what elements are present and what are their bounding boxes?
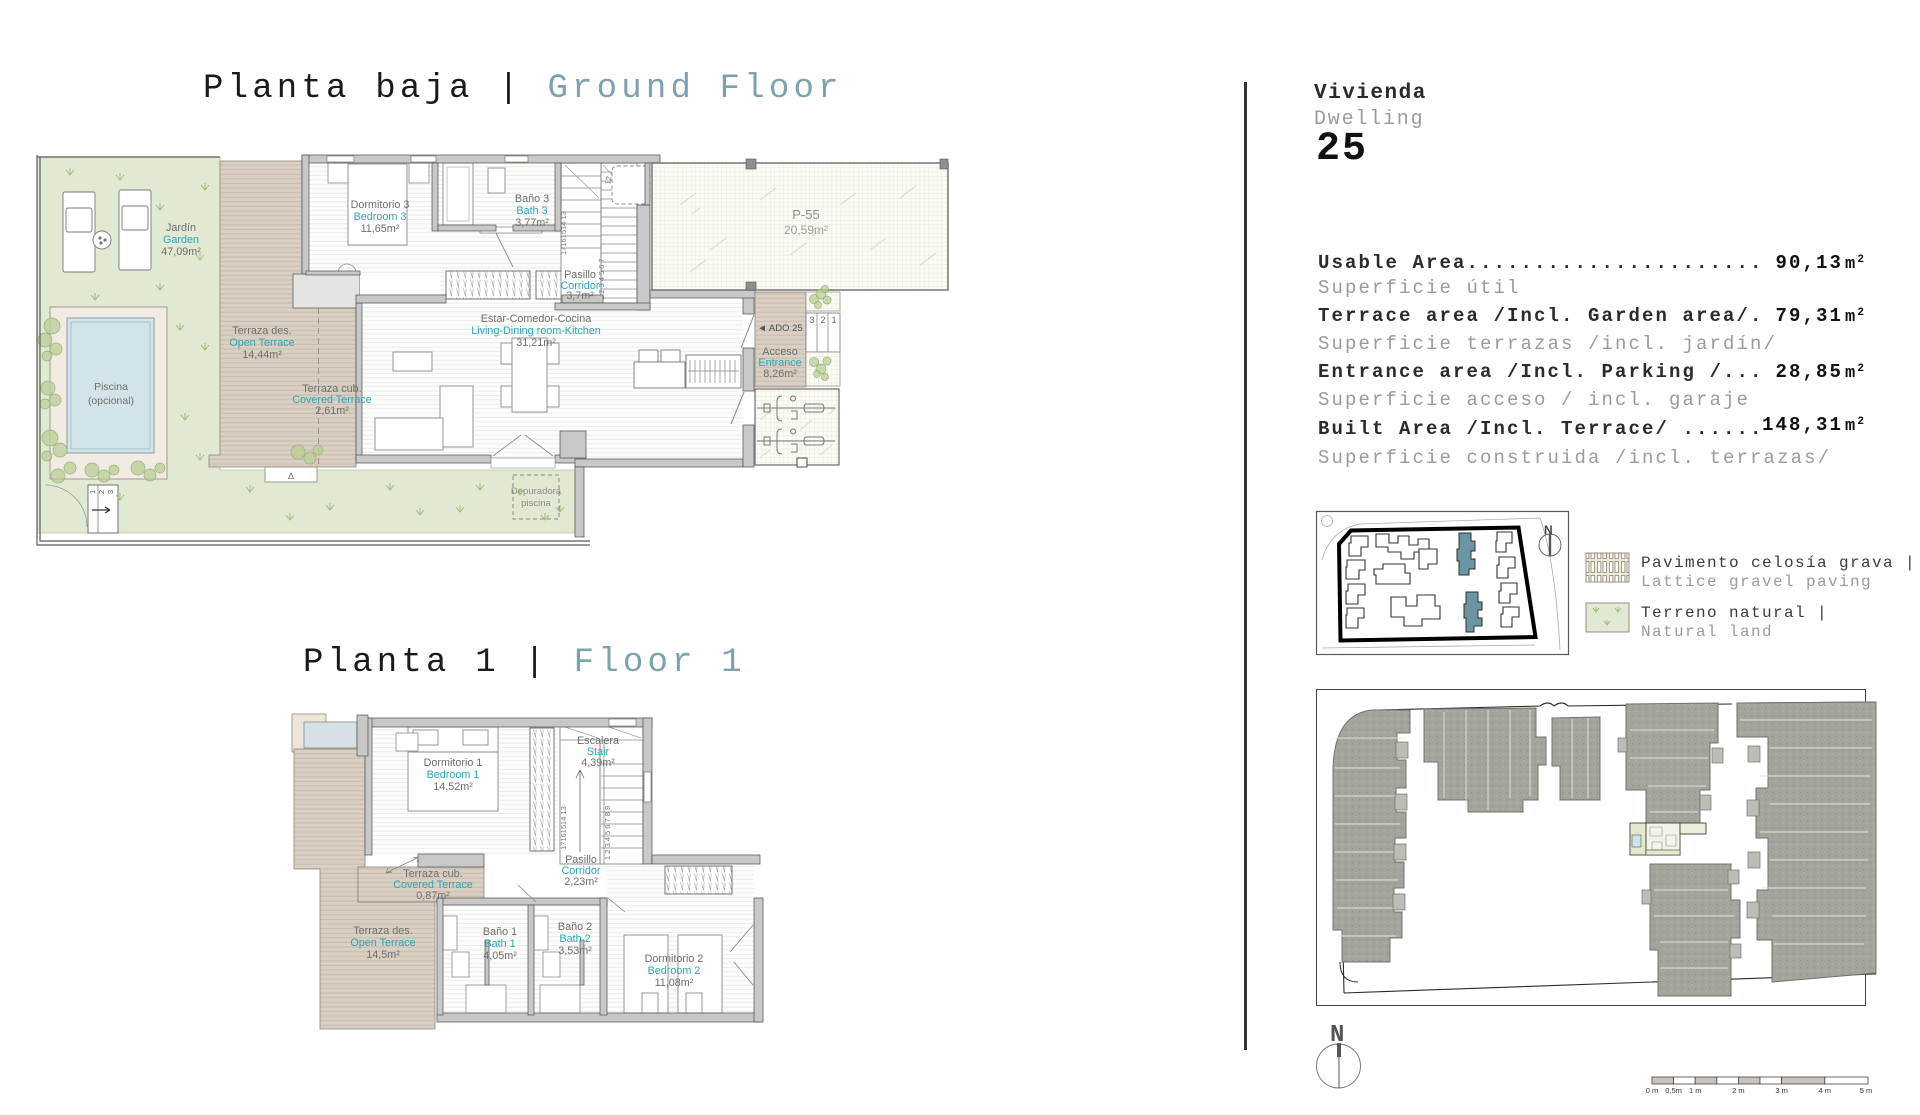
svg-text:m2: m2 [1845,363,1866,383]
svg-text:0,87m²: 0,87m² [416,890,450,902]
svg-text:Bedroom 3: Bedroom 3 [354,211,407,223]
svg-text:Terraza des.: Terraza des. [232,325,291,337]
svg-text:2,23m²: 2,23m² [564,876,598,888]
svg-text:4,05m²: 4,05m² [483,950,517,962]
svg-text:3 m: 3 m [1775,1086,1788,1095]
svg-text:2 m: 2 m [1732,1086,1745,1095]
svg-text:N: N [1544,523,1553,537]
svg-text:Piscina: Piscina [94,381,128,393]
svg-text:∆: ∆ [288,471,294,481]
svg-text:2,61m²: 2,61m² [315,405,349,417]
svg-text:0,5m: 0,5m [1665,1086,1682,1095]
svg-text:5 m: 5 m [1860,1086,1873,1095]
svg-text:20,59m²: 20,59m² [784,223,828,237]
svg-text:Natural land: Natural land [1641,623,1773,641]
svg-text:Baño 3: Baño 3 [515,193,549,205]
svg-text:m2: m2 [1845,254,1866,274]
svg-text:31,21m²: 31,21m² [516,337,556,349]
svg-text:90,13: 90,13 [1775,252,1843,274]
svg-text:1 m: 1 m [1689,1086,1702,1095]
svg-text:Dormitorio 2: Dormitorio 2 [645,953,704,965]
svg-text:4,39m²: 4,39m² [581,757,615,769]
svg-text:Living-Dining room-Kitchen: Living-Dining room-Kitchen [471,325,601,337]
svg-text:Entrance area /Incl. Parking /: Entrance area /Incl. Parking /... [1318,361,1764,383]
svg-text:Superficie útil: Superficie útil [1318,277,1521,299]
svg-text:Open Terrace: Open Terrace [350,937,415,949]
svg-text:Depuradora: Depuradora [511,486,562,497]
svg-text:m2: m2 [1845,416,1866,436]
svg-text:Bath 2: Bath 2 [559,933,590,945]
svg-text:◄ ADO 25: ◄ ADO 25 [757,323,802,334]
svg-text:Estar-Comedor-Cocina: Estar-Comedor-Cocina [481,313,591,325]
svg-text:Superficie construida /incl. t: Superficie construida /incl. terrazas/ [1318,447,1831,469]
svg-text:8,26m²: 8,26m² [763,368,797,380]
svg-text:piscina: piscina [521,498,551,509]
svg-text:3,7m²: 3,7m² [566,290,594,302]
svg-text:Baño 2: Baño 2 [558,921,592,933]
svg-text:Lattice gravel paving: Lattice gravel paving [1641,573,1872,591]
svg-text:3,77m²: 3,77m² [515,217,549,229]
svg-text:Bath 3: Bath 3 [516,205,547,217]
svg-text:Terraza des.: Terraza des. [353,925,412,937]
svg-text:(opcional): (opcional) [88,395,134,407]
svg-text:Planta 1 | Floor 1: Planta 1 | Floor 1 [303,644,746,682]
svg-text:P-55: P-55 [792,207,819,222]
svg-text:Terreno natural |: Terreno natural | [1641,604,1828,622]
svg-text:11,65m²: 11,65m² [361,223,400,235]
svg-text:148,31: 148,31 [1762,414,1843,436]
svg-text:Terrace area /Incl. Garden are: Terrace area /Incl. Garden area/. [1318,305,1764,327]
svg-text:25: 25 [1316,127,1368,172]
svg-text:3,53m²: 3,53m² [558,945,592,957]
svg-text:11,08m²: 11,08m² [655,977,694,989]
svg-text:Superficie terrazas /incl. jar: Superficie terrazas /incl. jardín/ [1318,333,1777,355]
svg-text:Bedroom 2: Bedroom 2 [648,965,701,977]
svg-text:1: 1 [831,315,836,325]
svg-text:0 m: 0 m [1646,1086,1659,1095]
svg-text:Bedroom 1: Bedroom 1 [427,769,480,781]
svg-text:m2: m2 [1845,307,1866,327]
svg-text:47,09m²: 47,09m² [161,246,201,258]
svg-text:14,5m²: 14,5m² [366,949,400,961]
svg-text:79,31: 79,31 [1775,305,1843,327]
svg-text:2: 2 [97,490,106,494]
svg-text:14,44m²: 14,44m² [242,349,282,361]
svg-text:Baño 1: Baño 1 [483,926,517,938]
svg-text:Garden: Garden [163,234,199,246]
svg-text:28,85: 28,85 [1775,361,1843,383]
svg-text:17161514 13: 17161514 13 [559,806,568,850]
svg-text:3: 3 [809,315,814,325]
svg-text:Open Terrace: Open Terrace [229,337,294,349]
svg-text:4 m: 4 m [1819,1086,1832,1095]
svg-text:Planta baja | Ground Floor: Planta baja | Ground Floor [203,70,843,108]
svg-text:Dormitorio 3: Dormitorio 3 [351,199,410,211]
svg-text:Pavimento celosía grava |: Pavimento celosía grava | [1641,554,1916,572]
svg-text:Jardín: Jardín [166,222,196,234]
svg-text:Dormitorio 1: Dormitorio 1 [424,757,483,769]
svg-text:Bath 1: Bath 1 [484,938,515,950]
svg-text:1 2 3 4 5 6 7 8 9: 1 2 3 4 5 6 7 8 9 [603,806,612,860]
svg-text:2: 2 [820,315,825,325]
svg-text:3: 3 [106,490,115,494]
svg-text:1: 1 [88,490,97,494]
svg-text:Superficie acceso / incl. gara: Superficie acceso / incl. garaje [1318,389,1750,411]
svg-text:Built Area /Incl. Terrace/ ...: Built Area /Incl. Terrace/ ...... [1318,418,1764,440]
svg-text:Usable Area...................: Usable Area...................... [1318,252,1764,274]
svg-text:Vivienda: Vivienda [1314,82,1427,105]
svg-text:14,52m²: 14,52m² [433,781,473,793]
